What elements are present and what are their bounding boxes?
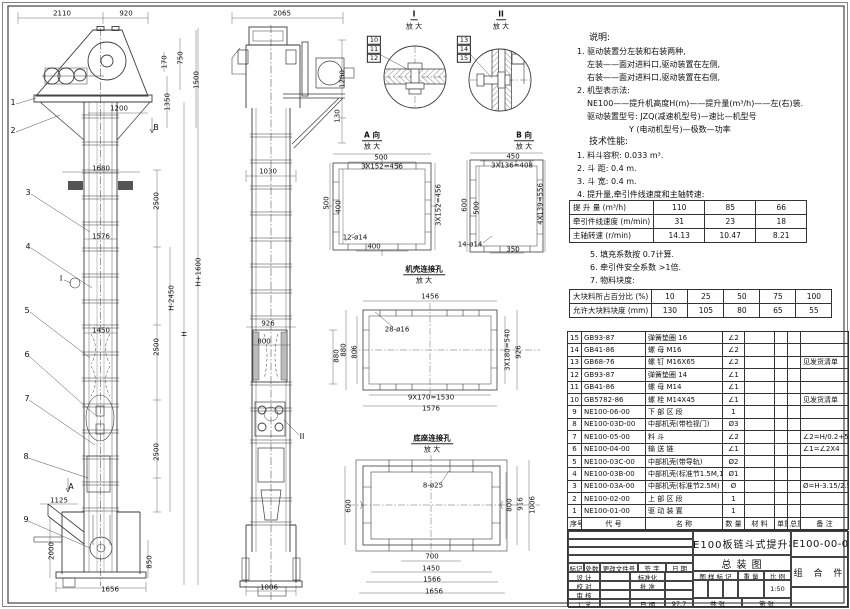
dim-label: 1656 [101, 587, 119, 594]
bom-cell [745, 406, 775, 418]
bom-cell: Ø3 [723, 418, 745, 430]
dim-label: 1350 [165, 93, 172, 111]
view-title: A 向 [362, 131, 382, 141]
dim-label: 800 [507, 498, 514, 511]
dim-label: 放 大 [406, 24, 422, 31]
performance-table: 提 升 量 (m³/h)1108566牵引件线速度 (m/min)312318主… [569, 200, 807, 243]
note-line: 2. 斗 距: 0.4 m. [577, 162, 803, 175]
notes-block: 说明:1. 驱动装置分左装和右装两种,左装——面对进料口,驱动装置在左侧,右装—… [577, 32, 803, 201]
bom-cell: 15 [568, 332, 582, 344]
bom-cell: NE100-03B-00 [582, 468, 646, 480]
design-label: 设 计 [568, 572, 600, 581]
dim-label: H+1600 [196, 258, 203, 287]
bom-cell: ∠1=∠2X4 [801, 443, 849, 455]
bom-cell [775, 332, 788, 344]
bom-cell [745, 455, 775, 467]
bom-cell [788, 406, 801, 418]
bom-cell: 螺 母 M16 [646, 344, 723, 356]
table-cell: 66 [756, 201, 807, 215]
bom-cell [775, 418, 788, 430]
review-sign [600, 590, 630, 599]
dim-label: 1030 [259, 169, 277, 176]
callout-label: 14 [457, 45, 471, 54]
bom-cell: 见发货清单 [801, 393, 849, 405]
dim-label: 28-ø16 [385, 327, 410, 334]
dim-label: 放 大 [364, 144, 380, 151]
table-cell: 80 [724, 304, 760, 318]
note-line: 6. 牵引件安全系数 >1倍. [590, 261, 681, 274]
bom-cell: 螺 栓 M14X45 [646, 393, 723, 405]
bom-cell [788, 493, 801, 505]
dim-label: 500 [374, 155, 387, 162]
bom-cell: ∠1 [723, 393, 745, 405]
bom-cell: NE100-05-00 [582, 431, 646, 443]
bom-cell: 弹簧垫圈 16 [646, 332, 723, 344]
dim-label: 7 [24, 395, 29, 403]
note-line: 技术性能: [577, 136, 803, 149]
note-line: 1. 驱动装置分左装和右装两种, [577, 45, 803, 58]
bom-cell [775, 369, 788, 381]
dim-label: 1500 [194, 71, 201, 89]
dim-label: 700 [425, 554, 438, 561]
table-cell: 23 [705, 215, 756, 229]
dim-label: 500 [474, 201, 481, 214]
mark-box [693, 580, 708, 598]
dim-label: 8-ø25 [423, 483, 443, 490]
check-label: 校 对 [568, 581, 600, 590]
bom-cell: 1 [723, 505, 745, 517]
dim-label: 1456 [421, 294, 439, 301]
bom-cell: ∠2 [723, 356, 745, 368]
bom-cell [788, 443, 801, 455]
bom-header-cell: 备 注 [801, 517, 849, 529]
table-cell: 主轴转速 (r/min) [570, 229, 654, 243]
bom-cell: ∠1 [723, 443, 745, 455]
bom-cell: 13 [568, 356, 582, 368]
note-line: 左装——面对进料口,驱动装置在左侧, [577, 58, 803, 71]
table-cell: 提 升 量 (m³/h) [570, 201, 654, 215]
weight-value [738, 580, 764, 598]
dim-label: 1125 [50, 498, 68, 505]
blank-cell [791, 587, 849, 608]
bom-cell: Ø [723, 480, 745, 492]
bom-cell [775, 393, 788, 405]
dim-label: 2500 [154, 443, 161, 461]
drawing-number: NE100-00-00 [791, 531, 849, 557]
table-cell: 允许大块料块度 (mm) [570, 304, 652, 318]
bom-cell: NE100-04-00 [582, 443, 646, 455]
dim-label: 130 [335, 109, 342, 122]
callout-label: 11 [367, 45, 381, 54]
bom-cell: 料 斗 [646, 431, 723, 443]
dim-label: 放 大 [516, 144, 532, 151]
bom-cell: 4 [568, 468, 582, 480]
detail-i [381, 46, 446, 108]
bom-cell: 3 [568, 480, 582, 492]
bom-cell [775, 381, 788, 393]
bom-cell: 1 [723, 493, 745, 505]
bom-cell [745, 468, 775, 480]
bom-cell: 11 [568, 381, 582, 393]
side-view-linework [232, 12, 354, 600]
bom-cell [775, 344, 788, 356]
table-cell: 100 [796, 290, 832, 304]
bom-cell [801, 332, 849, 344]
table-cell: 65 [760, 304, 796, 318]
bom-cell: 1 [568, 505, 582, 517]
table-cell: 8.21 [756, 229, 807, 243]
rev-row [568, 555, 693, 563]
part-type: 组 合 件 [791, 557, 849, 587]
bom-cell [745, 480, 775, 492]
bom-cell [801, 493, 849, 505]
view-title: II [496, 10, 506, 20]
table-cell: 50 [724, 290, 760, 304]
bom-cell [745, 431, 775, 443]
bom-cell: NE100-03C-00 [582, 455, 646, 467]
rev-row [568, 547, 693, 555]
note-line: NE100——提升机高度H(m)——提升量(m³/h)——左(右)装. [577, 97, 803, 110]
mark-box [723, 580, 738, 598]
dim-label: 400 [336, 200, 343, 213]
bom-cell: NE100-03A-00 [582, 480, 646, 492]
dim-label: 1450 [92, 328, 110, 335]
date-value: 97.7 [665, 599, 693, 608]
bom-cell: 中部机壳(带检视门) [646, 418, 723, 430]
view-title: B 向 [514, 131, 534, 141]
bom-cell: ∠2 [723, 332, 745, 344]
bom-cell: 12 [568, 369, 582, 381]
dim-label: 放 大 [416, 278, 432, 285]
bom-cell [775, 468, 788, 480]
bom-cell [801, 369, 849, 381]
dim-label: 4 [25, 243, 30, 251]
dim-label: 926 [516, 345, 523, 358]
bom-cell: NE100-06-00 [582, 406, 646, 418]
bom-cell [788, 369, 801, 381]
dim-label: 806 [352, 345, 359, 358]
bom-cell [788, 468, 801, 480]
dim-label: 880 [341, 343, 348, 356]
bom-cell: 驱 动 装 置 [646, 505, 723, 517]
rev-header-mark: 标记 [568, 563, 584, 572]
bom-cell [775, 480, 788, 492]
bom-cell: 7 [568, 431, 582, 443]
table-cell: 大块料所占百分比 (%) [570, 290, 652, 304]
dim-label: 920 [119, 11, 132, 18]
bom-cell: ∠2 [723, 431, 745, 443]
bom-cell [745, 418, 775, 430]
table-cell: 85 [705, 201, 756, 215]
dim-label: 2000 [49, 542, 56, 560]
detail-ii [469, 49, 531, 111]
dim-label: 3X152=456 [361, 164, 403, 171]
bom-cell [775, 431, 788, 443]
dim-label: 1450 [422, 566, 440, 573]
bom-cell [801, 406, 849, 418]
dim-label: 750 [178, 51, 185, 64]
callout-label: 13 [457, 36, 471, 45]
bom-cell [801, 505, 849, 517]
dim-label: 1656 [425, 589, 443, 596]
bom-header-cell: 材 料 [745, 517, 775, 529]
bom-cell [745, 493, 775, 505]
note-line: Y (电动机型号)—极数—功率 [577, 123, 803, 136]
bom-cell [775, 406, 788, 418]
sheet-number: 第 张 [742, 598, 791, 608]
bom-cell: GB41-86 [582, 344, 646, 356]
dim-label: 3 [25, 189, 30, 197]
bom-cell: 弹簧垫圈 14 [646, 369, 723, 381]
bom-cell [745, 344, 775, 356]
bom-cell [801, 455, 849, 467]
bom-cell: 9 [568, 406, 582, 418]
dim-label: 1566 [423, 577, 441, 584]
bom-cell [775, 493, 788, 505]
bom-cell: GB93-87 [582, 369, 646, 381]
dim-label: 2500 [154, 338, 161, 356]
bom-cell [788, 393, 801, 405]
rev-row [568, 531, 693, 539]
note-line: 1. 料斗容积: 0.033 m³. [577, 149, 803, 162]
bom-cell: 输 送 链 [646, 443, 723, 455]
bom-cell [745, 505, 775, 517]
dim-label: 4X139=556 [538, 183, 545, 225]
dim-label: I [60, 275, 62, 283]
bom-cell: 上 部 区 段 [646, 493, 723, 505]
title-block: 标记 处数 更改文件号 签 字 日 期 设 计 标准化 校 对 批 准 审 核 … [567, 530, 848, 607]
bom-cell: 2 [568, 493, 582, 505]
bom-cell: NE100-03D-00 [582, 418, 646, 430]
date-label: 日 期 [630, 599, 665, 608]
dim-label: 14-ø14 [458, 242, 483, 249]
drawing-sheet: 211092017075013501500120012B168025003157… [0, 0, 850, 609]
dim-label: 500 [324, 196, 331, 209]
table-cell: 10.47 [705, 229, 756, 243]
bom-header-cell: 单重 [775, 517, 788, 529]
note-line: 3. 斗 宽: 0.4 m. [577, 175, 803, 188]
check-sign [600, 581, 630, 590]
bom-cell [788, 332, 801, 344]
dim-label: 916 [518, 497, 525, 510]
bom-cell: 6 [568, 443, 582, 455]
table-cell: 75 [760, 290, 796, 304]
bom-cell [801, 418, 849, 430]
bom-cell: Ø=H-3.15/2.5 [801, 480, 849, 492]
dim-label: 9 [23, 516, 28, 524]
bom-cell: 中部机壳(带导轨) [646, 455, 723, 467]
base-holes-view [345, 455, 540, 593]
bom-header-cell: 序号 [568, 517, 582, 529]
notes-block-2: 5. 填充系数按 0.7计算.6. 牵引件安全系数 >1倍.7. 物料块度: [590, 248, 681, 287]
table-cell: 31 [654, 215, 705, 229]
dim-label: 8 [23, 453, 28, 461]
weight-label: 重 量 [738, 571, 764, 580]
bom-cell: GB5782-86 [582, 393, 646, 405]
bom-cell [801, 468, 849, 480]
drawing-title-line1: NE100板链斗式提升机 [693, 531, 791, 555]
bom-header-cell: 名 称 [646, 517, 723, 529]
sheet-total: 共 张 [693, 598, 742, 608]
bom-cell [775, 356, 788, 368]
dim-label: 1576 [422, 406, 440, 413]
bom-cell: 中部机壳(标准节1.5M,1M) [646, 468, 723, 480]
scale-value: 1:50 [764, 580, 791, 598]
callout-label: 12 [367, 54, 381, 63]
dim-label: 9X170=1530 [408, 395, 454, 402]
bom-cell [775, 455, 788, 467]
dim-label: 6 [24, 351, 29, 359]
view-title: 机壳连接孔 [403, 265, 445, 275]
dim-label: 850 [147, 555, 154, 568]
bom-cell: ∠2 [723, 344, 745, 356]
dim-label: 12-ø14 [343, 235, 368, 242]
dim-label: 1576 [92, 234, 110, 241]
rev-header-sign: 签 字 [638, 563, 666, 572]
dim-label: 5 [24, 307, 29, 315]
approve-sign [665, 581, 693, 590]
bom-cell [788, 480, 801, 492]
callout-label: 10 [367, 36, 381, 45]
bom-cell [745, 332, 775, 344]
bom-cell [745, 393, 775, 405]
dim-label: 1006 [260, 585, 278, 592]
table-cell: 110 [654, 201, 705, 215]
lump-size-table: 大块料所占百分比 (%)10255075100允许大块料块度 (mm)13010… [569, 289, 832, 318]
dim-label: 600 [462, 198, 469, 211]
bom-cell [745, 381, 775, 393]
table-cell: 14.13 [654, 229, 705, 243]
dim-label: 2065 [273, 11, 291, 18]
dim-label: 2 [10, 127, 15, 135]
dim-label: 1680 [92, 166, 110, 173]
dim-label: 3X136=408 [491, 163, 533, 170]
bom-cell: ∠1 [723, 369, 745, 381]
bom-cell [788, 356, 801, 368]
dim-label: II [300, 433, 305, 441]
bom-cell: NE100-01-00 [582, 505, 646, 517]
bom-cell [788, 505, 801, 517]
drawing-title-line2: 总 装 图 [693, 555, 791, 571]
bom-cell: 1 [723, 406, 745, 418]
dim-label: 1200 [340, 70, 347, 88]
bom-cell [788, 431, 801, 443]
rev-header-doc: 更改文件号 [600, 563, 638, 572]
bom-cell: NE100-02-00 [582, 493, 646, 505]
view-title: I [411, 10, 418, 20]
table-cell: 18 [756, 215, 807, 229]
rev-header-date: 日 期 [666, 563, 693, 572]
dim-label: 1200 [110, 106, 128, 113]
bom-cell: 8 [568, 418, 582, 430]
bom-cell [788, 344, 801, 356]
bom-cell: 下 部 区 段 [646, 406, 723, 418]
bom-cell: GB68-76 [582, 356, 646, 368]
note-line: 驱动装置型号: JZQ(减速机型号)—速比—机型号 [577, 110, 803, 123]
dim-label: 800 [257, 339, 270, 346]
dim-label: H [182, 331, 189, 336]
dim-label: 350 [506, 247, 519, 254]
rev-row [568, 539, 693, 547]
bom-cell: GB41-86 [582, 381, 646, 393]
rev-header-count: 处数 [584, 563, 600, 572]
standardize-sign [665, 572, 693, 581]
dim-label: 3X180=540 [505, 329, 512, 371]
bom-cell: 14 [568, 344, 582, 356]
bom-cell [788, 381, 801, 393]
dim-label: A [68, 483, 73, 491]
bom-cell: 10 [568, 393, 582, 405]
dim-label: 放 大 [424, 447, 440, 454]
bom-cell: ∠1 [723, 381, 745, 393]
bom-cell: Ø2 [723, 455, 745, 467]
table-cell: 25 [688, 290, 724, 304]
bom-header-cell: 数 量 [723, 517, 745, 529]
note-line: 说明: [577, 32, 803, 45]
bom-cell [788, 418, 801, 430]
mark-label: 图 样 标 记 [693, 571, 738, 580]
dim-label: 3X152=456 [436, 184, 443, 226]
dim-label: 2110 [53, 11, 71, 18]
dim-label: 2500 [154, 192, 161, 210]
note-line: 7. 物料块度: [590, 274, 681, 287]
table-cell: 55 [796, 304, 832, 318]
bom-cell: 螺 母 M14 [646, 381, 723, 393]
bom-cell [801, 381, 849, 393]
blank-cell [665, 590, 693, 599]
bom-cell [775, 505, 788, 517]
note-line: 2. 机型表示法: [577, 84, 803, 97]
table-cell: 105 [688, 304, 724, 318]
dim-label: 600 [346, 499, 353, 512]
bom-header-cell: 总重 [788, 517, 801, 529]
dim-label: 926 [261, 321, 274, 328]
bom-header-cell: 代 号 [582, 517, 646, 529]
dim-label: 1006 [530, 496, 537, 514]
dim-label: 170 [162, 55, 169, 68]
mark-box [708, 580, 723, 598]
standardize-label: 标准化 [630, 572, 665, 581]
bom-cell: 螺 钉 M16X65 [646, 356, 723, 368]
bom-cell: GB93-87 [582, 332, 646, 344]
craft-label: 工 艺 [568, 599, 600, 608]
dim-label: 放 大 [493, 24, 509, 31]
note-line: 5. 填充系数按 0.7计算. [590, 248, 681, 261]
table-cell: 130 [652, 304, 688, 318]
approve-label: 批 准 [630, 581, 665, 590]
bom-cell [775, 443, 788, 455]
dim-label: 400 [367, 244, 380, 251]
design-sign [600, 572, 630, 581]
bom-cell [788, 455, 801, 467]
blank-cell [630, 590, 665, 599]
dim-label: H-2450 [169, 285, 176, 311]
bom-cell: 中部机壳(标准节2.5M) [646, 480, 723, 492]
dim-label: 450 [506, 154, 519, 161]
dim-label: B [153, 124, 159, 132]
bom-cell [801, 344, 849, 356]
bom-cell: Ø1 [723, 468, 745, 480]
bom-cell: ∠2=H/0.2+5.75 [801, 431, 849, 443]
bom-cell [745, 443, 775, 455]
table-cell: 10 [652, 290, 688, 304]
review-label: 审 核 [568, 590, 600, 599]
bom-cell: 5 [568, 455, 582, 467]
view-title: 底座连接孔 [411, 434, 453, 444]
note-line: 右装——面对进料口,驱动装置在右侧, [577, 71, 803, 84]
bom-cell [745, 356, 775, 368]
callout-label: 15 [457, 54, 471, 63]
